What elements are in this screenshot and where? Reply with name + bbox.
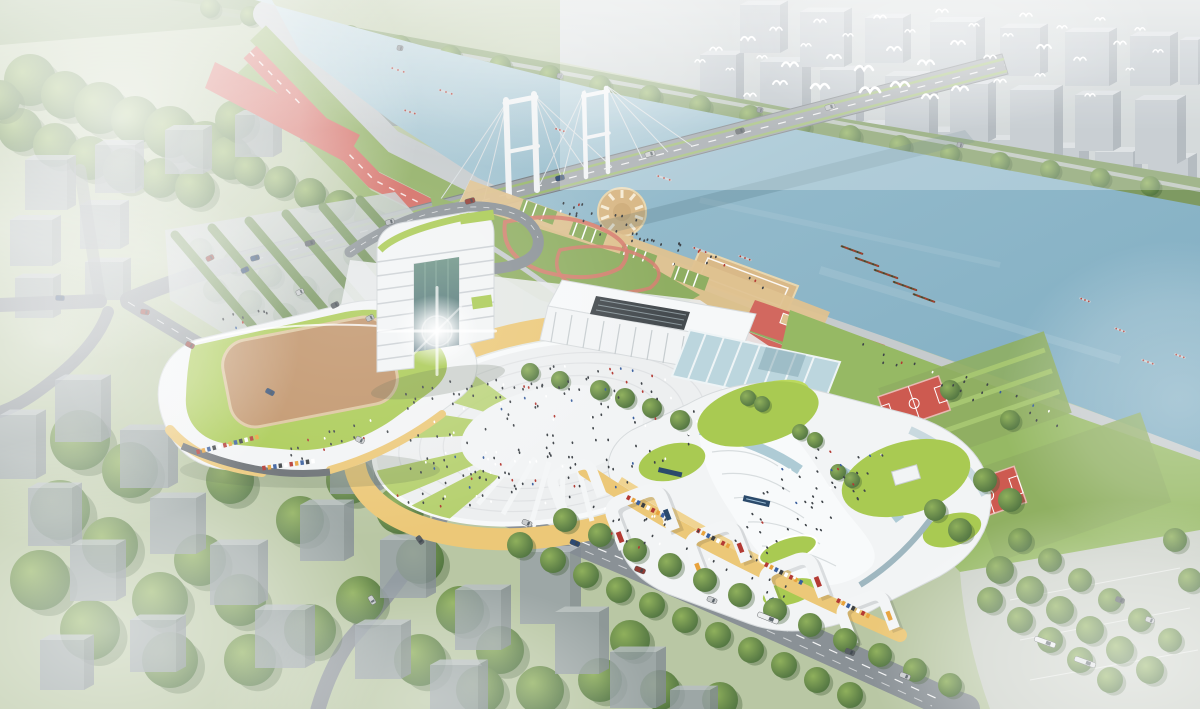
architectural-rendering [0, 0, 1200, 709]
scene-canvas [0, 0, 1200, 709]
